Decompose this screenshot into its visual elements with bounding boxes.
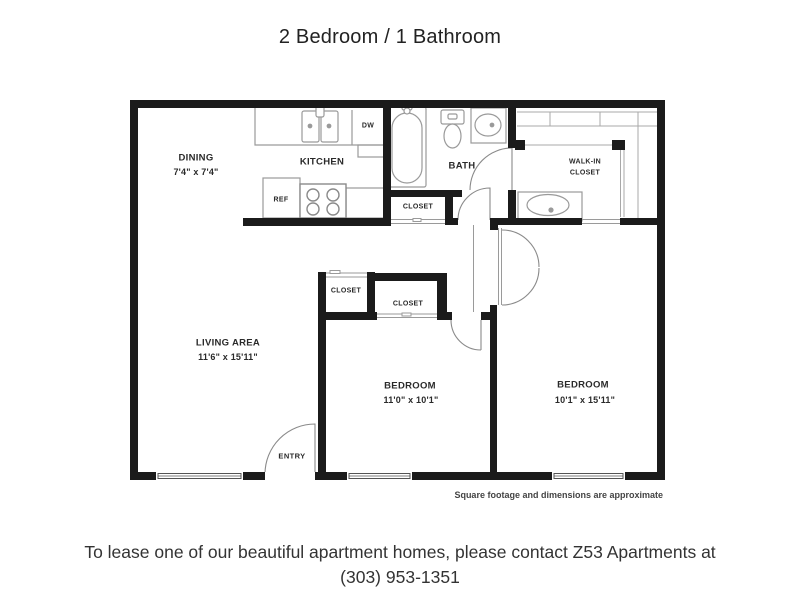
kitchen-sink-fixture [302,106,338,142]
floorplan-page: { "title": "2 Bedroom / 1 Bathroom", "pl… [0,0,800,600]
room-dims-bedroom2: 10'1" x 15'11" [555,395,615,405]
fixture-label-ref: REF [274,197,289,204]
room-label-living: LIVING AREA [196,338,260,349]
footnote: Square footage and dimensions are approx… [130,490,663,500]
fixture-label-dw: DW [362,123,374,130]
room-dims-dining: 7'4" x 7'4" [173,167,218,177]
entry-label: ENTRY [278,452,305,461]
room-dims-bedroom1: 11'0" x 10'1" [384,395,439,405]
room-label-dining: DINING [178,153,213,164]
contact-caption-line1: To lease one of our beautiful apartment … [0,540,800,565]
bathtub-fixture [388,104,426,187]
room-label-kitchen: KITCHEN [300,157,344,168]
contact-caption-line2: (303) 953-1351 [0,565,800,590]
vanity-sink-fixture [518,192,582,221]
closet-label-living: CLOSET [331,288,361,295]
room-label-bedroom1: BEDROOM [384,381,436,392]
bath-sink-fixture [471,108,506,143]
contact-caption: To lease one of our beautiful apartment … [0,540,800,590]
windows [156,472,625,480]
room-dims-living: 11'6" x 15'11" [198,352,258,362]
toilet-fixture [441,110,464,148]
closet-label-bedroom1: CLOSET [393,301,423,308]
room-label-walkin-line1: WALK-IN [569,159,601,166]
floorplan: DINING 7'4" x 7'4" KITCHEN BATH WALK-IN … [130,100,665,480]
room-label-bedroom2: BEDROOM [557,380,609,391]
closet-label-hall: CLOSET [403,204,433,211]
stove-fixture [300,184,346,218]
room-label-walkin-line2: CLOSET [570,170,600,177]
room-label-bath: BATH [449,161,476,172]
page-title: 2 Bedroom / 1 Bathroom [0,26,780,49]
